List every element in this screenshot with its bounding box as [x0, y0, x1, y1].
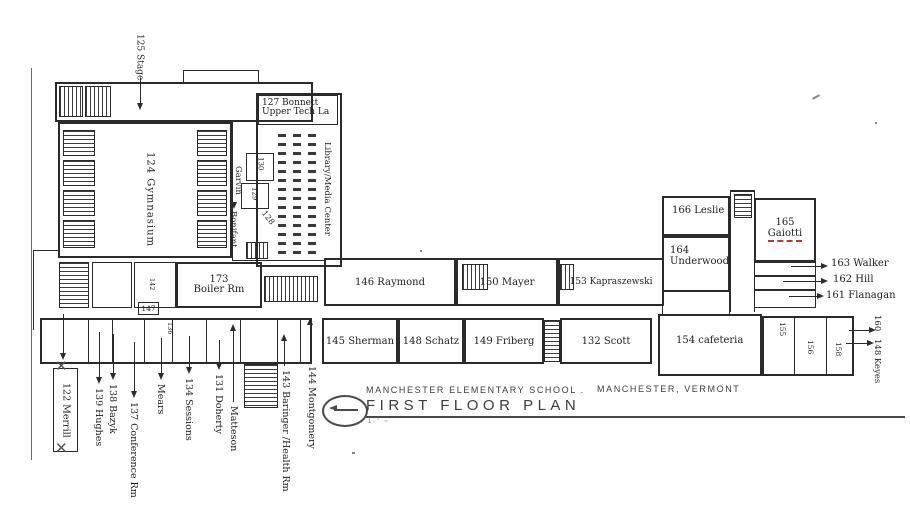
floor-plan-canvas: 125 Stage 124 Gymnasium Garvin Bonifant …	[0, 0, 910, 524]
room-147-label-box: 147	[138, 302, 159, 315]
north-arrow-oval	[322, 395, 368, 427]
corridor-wall	[33, 250, 59, 251]
keyes-leader-line	[846, 343, 869, 344]
scan-edge-line	[31, 68, 32, 460]
corridor-wall	[232, 260, 326, 261]
stage-leader-arrowhead	[137, 103, 143, 110]
corridor-wall	[730, 190, 755, 192]
room-divider-wall	[88, 319, 89, 363]
room-160-leader-line	[849, 330, 871, 331]
mears-label: Mears	[155, 384, 165, 414]
south-stairwell	[544, 320, 560, 362]
stage-label: 125 Stage	[134, 34, 143, 80]
room-142-label: 142	[148, 278, 155, 290]
room-divider-wall	[794, 317, 795, 375]
raymond-room: 146 Raymond	[324, 258, 456, 306]
doherty-leader-arrowhead	[216, 363, 222, 370]
schatz-room: 148 Schatz	[398, 318, 464, 364]
boiler-room-label-line2: Boiler Rm	[194, 285, 245, 296]
title-location-line: MANCHESTER, VERMONT	[597, 385, 740, 394]
bleacher-block	[197, 190, 227, 216]
room-divider-wall	[206, 319, 207, 363]
south-stair-protrusion	[244, 364, 278, 408]
room-divider-wall	[240, 319, 241, 363]
merrill-label: 122 Merrill	[61, 383, 71, 438]
scan-speck	[875, 122, 877, 124]
bleacher-block	[63, 190, 95, 216]
library-shelving	[293, 134, 301, 258]
matteson-leader-line	[233, 330, 234, 402]
library-label: Library/Media Center	[322, 142, 331, 236]
connector-wall	[662, 292, 663, 314]
bazyk-leader-arrowhead	[110, 373, 116, 380]
room-divider-wall	[144, 319, 145, 363]
bonnett-label: 127 Bonnett Upper Tech La	[262, 99, 329, 118]
bleacher-block	[63, 160, 95, 186]
scan-speck	[352, 452, 355, 454]
bleacher-block	[197, 160, 227, 186]
doherty-leader-line	[219, 340, 220, 364]
montgomery-label: 144 Montgomery	[306, 366, 316, 449]
hughes-leader-line	[99, 332, 100, 378]
bonifant-label: Bonifant	[228, 211, 237, 248]
room-136-label: 136	[166, 322, 173, 334]
corridor-stair	[264, 276, 318, 302]
flanagan-leader-line	[789, 296, 817, 297]
connector-wall	[729, 292, 730, 314]
west-outer-wall	[33, 250, 34, 330]
stage-bump-room	[183, 70, 259, 84]
east-stair	[734, 194, 752, 218]
scan-speck	[812, 94, 820, 100]
leslie-label: 166 Leslie	[672, 206, 724, 217]
room-129-label: 129	[250, 187, 257, 200]
bleacher-block	[63, 130, 95, 156]
friberg-room: 149 Friberg	[464, 318, 544, 364]
room-158-label: 158	[834, 342, 842, 356]
corridor-wall	[730, 190, 731, 312]
hill-room	[754, 276, 816, 290]
underwood-label-line2: Underwood	[670, 257, 729, 268]
conference-leader-arrowhead	[131, 391, 137, 398]
gymnasium-label: 124 Gymnasium	[144, 152, 155, 247]
library-shelving	[308, 134, 316, 258]
west-classroom-band	[40, 318, 312, 364]
baringer-leader-line	[284, 340, 285, 366]
stage-store-room	[85, 86, 111, 117]
north-arrow-shaft	[334, 409, 358, 411]
underwood-label: 164 Underwood	[670, 246, 729, 267]
flanagan-leader-arrowhead	[817, 293, 824, 299]
cafeteria-label: 154 cafeteria	[676, 336, 743, 347]
bleacher-block	[197, 220, 227, 248]
boiler-room: 173 Boiler Rm	[176, 262, 262, 308]
bazyk-label: 138 Bazyk	[107, 384, 117, 434]
kapraszewski-stair	[560, 264, 574, 290]
room-130-label: 130	[256, 157, 263, 170]
mears-leader-arrowhead	[158, 373, 164, 380]
hughes-label: 139 Hughes	[93, 388, 103, 446]
sessions-leader-line	[189, 336, 190, 368]
garvin-leader-arrowhead	[231, 202, 237, 209]
hill-label: 162 Hill	[833, 275, 874, 286]
plan-title: FIRST FLOOR PLAN	[366, 398, 580, 414]
room-156-label: 156	[806, 340, 814, 354]
scan-speck	[420, 250, 422, 252]
title-underline	[366, 416, 905, 418]
mears-leader-line	[161, 338, 162, 374]
section-x-mark: ✕	[55, 441, 68, 456]
stage-leader-line	[140, 78, 141, 104]
merrill-leader-line	[63, 314, 64, 354]
flanagan-room	[754, 290, 816, 308]
hill-leader-arrowhead	[821, 278, 828, 284]
service-room	[92, 262, 132, 308]
doherty-label: 131 Doherty	[213, 374, 223, 434]
bleacher-block	[197, 130, 227, 156]
sherman-room: 145 Sherman	[322, 318, 398, 364]
west-stair	[59, 262, 89, 308]
library-shelving	[278, 134, 286, 258]
mayer-stair	[462, 264, 488, 290]
title-school-line: MANCHESTER ELEMENTARY SCHOOL .	[366, 386, 585, 395]
matteson-label: Matteson	[228, 406, 238, 451]
entry-stair	[246, 242, 268, 259]
room-155-label: 155	[778, 322, 786, 336]
sessions-label: 134 Sessions	[183, 378, 193, 441]
walker-leader-line	[791, 266, 821, 267]
walker-room	[754, 262, 816, 276]
scott-room: 132 Scott	[560, 318, 652, 364]
baringer-label: 143 Baringer /Health Rm	[280, 370, 290, 492]
keyes-label: 148 Keyes	[872, 339, 881, 383]
hill-leader-line	[783, 281, 821, 282]
montgomery-leader-line	[310, 324, 311, 362]
room-divider-wall	[300, 319, 301, 363]
walker-leader-arrowhead	[821, 263, 828, 269]
title-scale-marks: 1·' ~	[368, 419, 390, 425]
room-divider-wall	[277, 319, 278, 363]
section-x-mark: ✕	[55, 359, 68, 374]
gaiotti-label-line1: 165	[768, 218, 802, 229]
conference-leader-line	[134, 342, 135, 392]
room-160-label: 160	[872, 315, 881, 331]
walker-label: 163 Walker	[831, 259, 889, 270]
conference-label: 137 Conference Rm	[128, 402, 138, 498]
bonnett-label-line2: Upper Tech La	[262, 108, 329, 117]
gaiotti-label-line2: Gaiotti	[768, 229, 802, 243]
sessions-leader-arrowhead	[186, 367, 192, 374]
room-divider-wall	[826, 317, 827, 375]
gaiotti-room: 165 Gaiotti	[754, 198, 816, 262]
north-arrow-head-icon	[329, 405, 337, 411]
bazyk-leader-line	[113, 334, 114, 374]
underwood-label-line1: 164	[670, 246, 729, 257]
hughes-leader-arrowhead	[96, 377, 102, 384]
bleacher-block	[63, 220, 95, 248]
stage-store-room	[59, 86, 83, 117]
flanagan-label: 161 Flanagan	[826, 291, 896, 302]
